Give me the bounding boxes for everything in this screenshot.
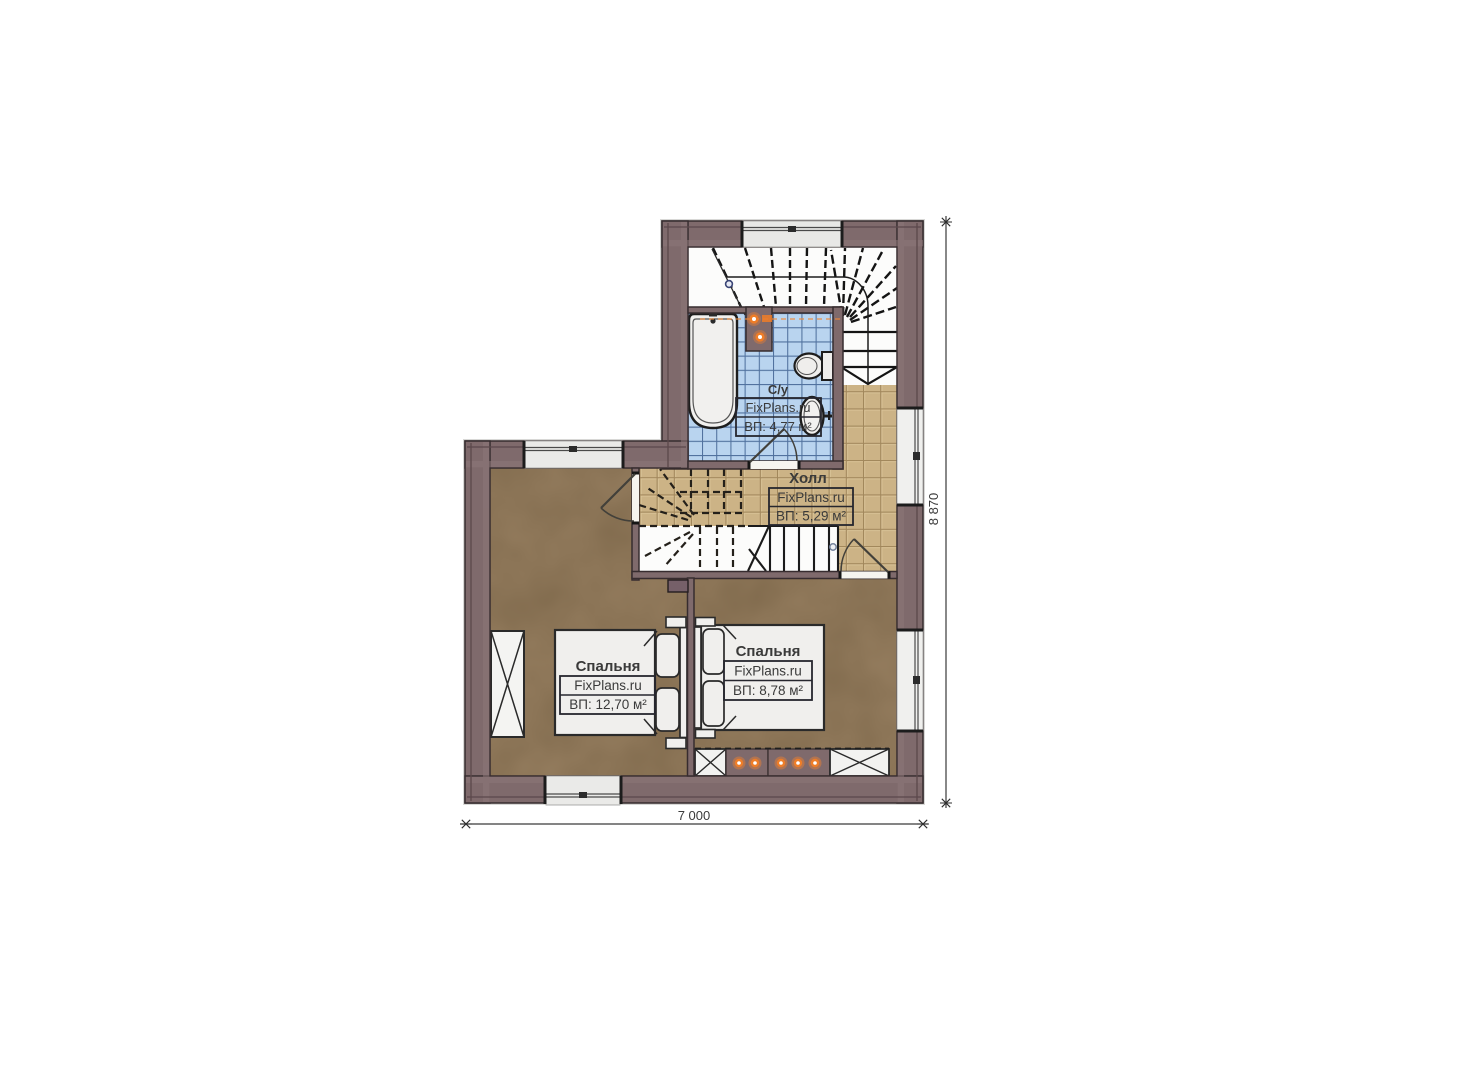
svg-text:С/у: С/у [768,382,789,397]
svg-text:ВП: 8,78 м²: ВП: 8,78 м² [733,683,804,698]
svg-text:8 870: 8 870 [926,493,941,526]
svg-text:ВП: 5,29 м²: ВП: 5,29 м² [776,508,847,523]
svg-text:ВП: 12,70 м²: ВП: 12,70 м² [569,697,647,712]
svg-text:FixPlans.ru: FixPlans.ru [777,490,845,505]
svg-text:FixPlans.ru: FixPlans.ru [734,663,802,678]
svg-text:Спальня: Спальня [736,643,801,660]
svg-text:FixPlans.ru: FixPlans.ru [574,678,642,693]
svg-text:Холл: Холл [789,470,827,487]
svg-text:7 000: 7 000 [678,808,711,823]
svg-text:FixPlans.ru: FixPlans.ru [745,400,810,415]
svg-text:Спальня: Спальня [576,658,641,675]
svg-text:ВП: 4,77 м²: ВП: 4,77 м² [744,419,812,434]
